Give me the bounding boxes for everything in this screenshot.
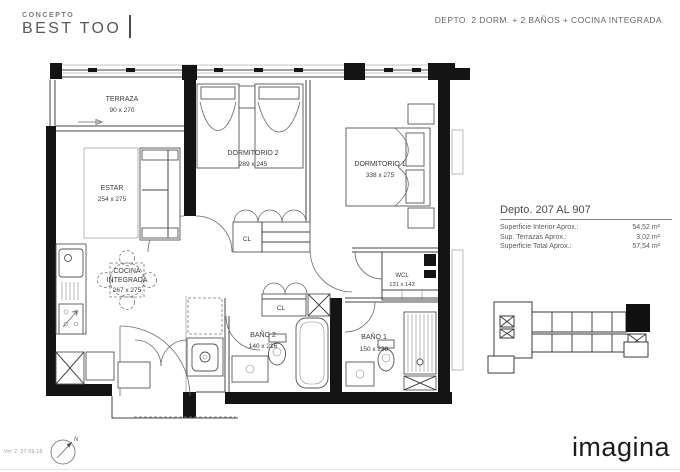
info-panel-title: Depto. 207 AL 907 xyxy=(500,204,672,220)
compass-north-label: N xyxy=(74,437,79,443)
room-dims-dorm1: 338 x 275 xyxy=(366,172,395,179)
room-dims-wcl: 131 x 143 xyxy=(389,282,414,288)
room-dims-bano2: 140 x 216 xyxy=(249,343,278,350)
info-panel: Depto. 207 AL 907 Superficie Interior Ap… xyxy=(500,204,672,252)
room-label-estar: ESTAR xyxy=(101,185,124,192)
room-label-wcl: WCL xyxy=(395,273,409,279)
room-label-dorm1: DORMITORIO 1 xyxy=(354,161,405,168)
bottom-rule xyxy=(0,469,680,470)
info-row-label: Sup. Terrazas Aprox.: xyxy=(500,233,567,243)
version-text: Ver 2: 27.09.18 xyxy=(4,449,42,455)
key-plan-unit-highlight xyxy=(626,304,650,332)
room-dims-estar: 254 x 275 xyxy=(98,196,127,203)
terraza-outline xyxy=(50,80,184,131)
info-row-label: Superficie Interior Aprox.: xyxy=(500,223,579,233)
info-row-value: 57,54 m² xyxy=(632,242,672,252)
window-band xyxy=(52,65,452,77)
compass-icon: N xyxy=(51,437,79,464)
info-row-terrazas: Sup. Terrazas Aprox.: 3,02 m² xyxy=(500,233,672,243)
hall-closet xyxy=(262,283,330,316)
room-label-dorm2: DORMITORIO 2 xyxy=(227,150,278,157)
kitchen xyxy=(56,244,150,388)
room-dims-bano1: 150 x 230 xyxy=(360,346,389,353)
closet-label-1: CL xyxy=(243,236,252,243)
key-plan xyxy=(488,302,650,373)
room-dims-dorm2: 289 x 245 xyxy=(239,161,268,168)
bathroom2-fixtures xyxy=(232,318,328,388)
bedroom2-closet xyxy=(233,210,310,252)
info-row-interior: Superficie Interior Aprox.: 54,52 m² xyxy=(500,223,672,233)
info-panel-rows: Superficie Interior Aprox.: 54,52 m² Sup… xyxy=(500,223,672,252)
room-label-cocina-2: INTEGRADA xyxy=(107,277,148,284)
brand-logo: imagina xyxy=(572,432,670,463)
info-row-value: 3,02 m² xyxy=(636,233,672,243)
room-label-bano1: BAÑO 1 xyxy=(361,332,387,341)
floor-plan-page: CONCEPTO BEST TOO DEPTO. 2 DORM. + 2 BAÑ… xyxy=(0,0,680,472)
room-dims-terraza: 90 x 270 xyxy=(110,107,135,114)
closet-label-2: CL xyxy=(277,305,286,312)
info-row-value: 54,52 m² xyxy=(632,223,672,233)
info-row-label: Superficie Total Aprox.: xyxy=(500,242,571,252)
room-label-bano2: BAÑO 2 xyxy=(250,330,276,339)
sofa xyxy=(84,148,180,240)
laundry-nook xyxy=(187,298,223,376)
wcl-counter xyxy=(382,254,438,300)
room-label-terraza: TERRAZA xyxy=(106,96,139,103)
room-dims-cocina: 267 x 275 xyxy=(113,287,142,294)
info-row-total: Superficie Total Aprox.: 57,54 m² xyxy=(500,242,672,252)
exterior-shaft xyxy=(452,130,463,370)
room-label-cocina-1: COCINA xyxy=(113,268,141,275)
